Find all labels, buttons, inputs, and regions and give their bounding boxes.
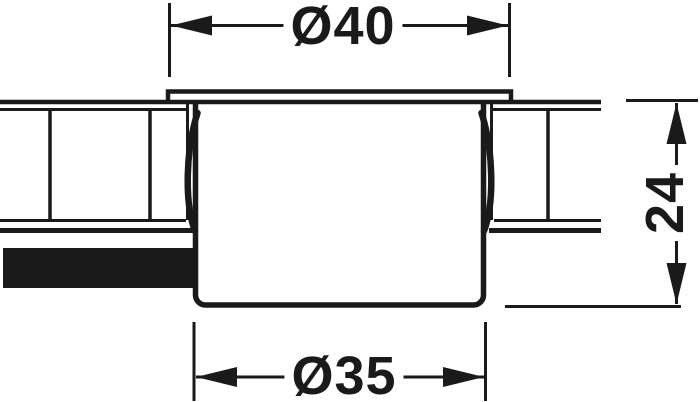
depth-label: 24	[638, 165, 692, 241]
drawing-canvas: Ø40 Ø35 24	[0, 0, 700, 402]
arrowhead-left-icon	[171, 16, 212, 36]
arrowhead-left-icon	[196, 367, 237, 387]
arrowhead-down-icon	[667, 263, 687, 304]
arrowhead-right-icon	[443, 367, 484, 387]
panel-right	[489, 103, 601, 231]
cup-body	[196, 103, 484, 305]
flange-diameter-label: Ø40	[283, 0, 402, 53]
panel-left	[0, 102, 601, 231]
line-art	[0, 0, 700, 402]
recessed-cup	[168, 92, 511, 306]
arrowhead-right-icon	[467, 16, 508, 36]
panel-edge-band	[3, 248, 193, 288]
body-diameter-label: Ø35	[284, 349, 403, 402]
arrowhead-up-icon	[667, 103, 687, 144]
